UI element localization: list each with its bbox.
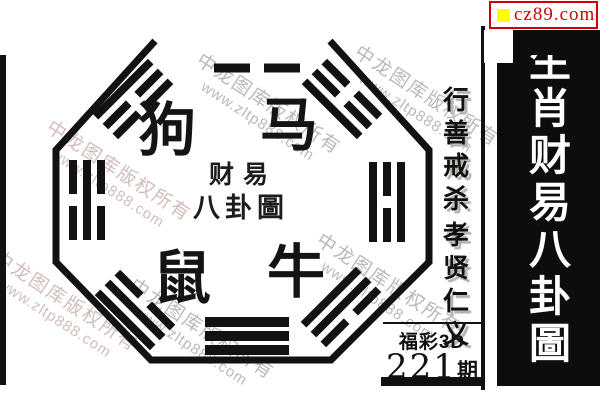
motto-char: 善 — [438, 117, 474, 150]
seal-line-bagua-tu: 八卦圖 — [193, 186, 289, 225]
sidebar-title: 生肖财易八卦圖 — [517, 40, 583, 369]
site-badge[interactable]: cz89.com — [489, 1, 598, 29]
sidebar-title-char: 财 — [517, 134, 583, 181]
sidebar-title-char: 圖 — [517, 322, 583, 369]
zodiac-char-马: 马 — [260, 97, 318, 155]
zodiac-char-狗: 狗 — [138, 102, 196, 160]
vertical-divider-line — [481, 26, 485, 390]
zodiac-char-牛: 牛 — [267, 244, 325, 302]
motto-char: 仁 — [438, 285, 474, 318]
motto-char: 戒 — [438, 150, 474, 183]
sidebar-title-char: 肖 — [517, 87, 583, 134]
sidebar-title-char: 八 — [517, 228, 583, 275]
motto-char: 贤 — [438, 252, 474, 285]
sidebar-white-notch — [484, 30, 513, 63]
motto-column-xingshan-jiesha: 行善戒杀 — [438, 84, 474, 216]
sidebar-title-char: 卦 — [517, 275, 583, 322]
motto-char: 孝 — [438, 219, 474, 252]
bagua-poster: 中龙图库版权所有www.zltp888.com中龙图库版权所有www.zltp8… — [0, 0, 600, 401]
site-badge-label: cz89.com — [514, 4, 595, 26]
motto-char: 行 — [438, 84, 474, 117]
motto-char: 杀 — [438, 183, 474, 216]
issue-box-top-border — [383, 322, 481, 324]
yellow-square-icon — [497, 9, 510, 22]
sidebar-title-char: 易 — [517, 181, 583, 228]
zodiac-char-鼠: 鼠 — [153, 250, 211, 308]
issue-box-bottom-bar — [381, 377, 481, 386]
